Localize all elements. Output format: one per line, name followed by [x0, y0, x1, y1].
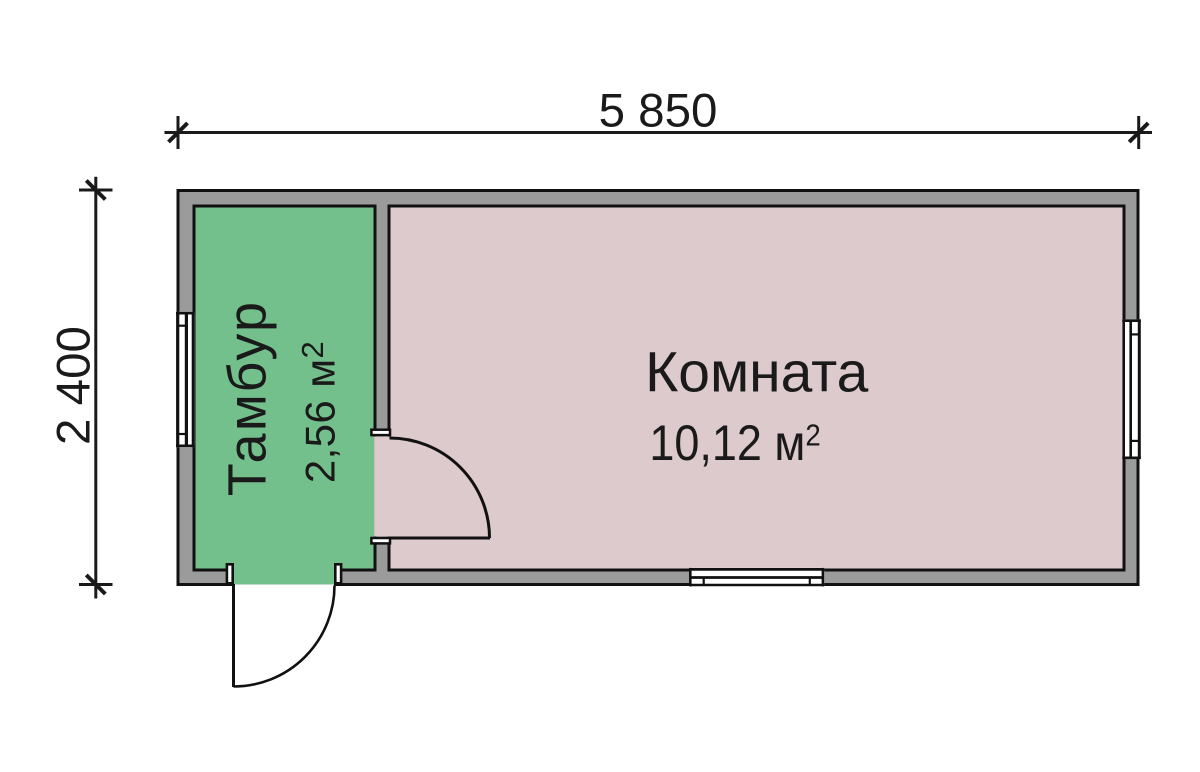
svg-text:Комната: Комната [645, 340, 868, 404]
svg-text:5 850: 5 850 [599, 85, 718, 138]
svg-text:2,56 м2: 2,56 м2 [295, 341, 344, 483]
svg-text:10,12 м2: 10,12 м2 [649, 416, 820, 472]
svg-text:2 400: 2 400 [47, 326, 100, 445]
svg-text:Тамбур: Тамбур [218, 300, 278, 496]
